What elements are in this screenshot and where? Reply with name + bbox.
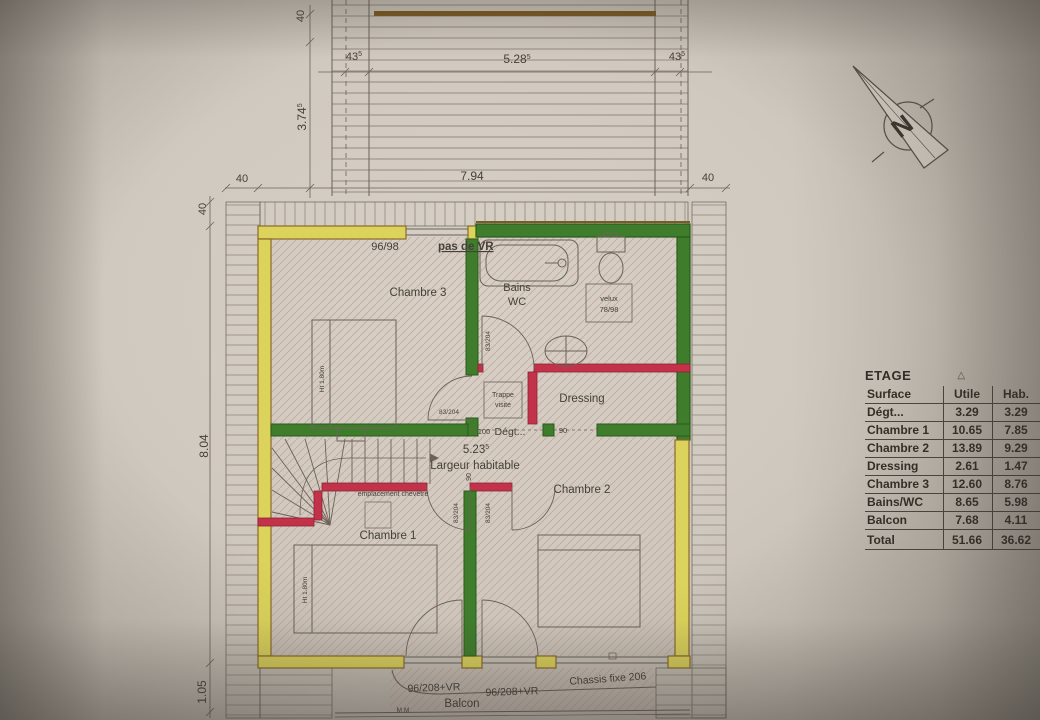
wall-corridor-green-right [597, 424, 690, 436]
dim-40-side: 40 [197, 203, 209, 215]
label-chambre2: Chambre 2 [554, 484, 611, 496]
table-row: Balcon7.684.11 [865, 512, 1040, 530]
dim-100: 100 [478, 427, 491, 436]
label-door-ch2: 83/204 [485, 503, 492, 523]
table-row: Bains/WC8.655.98 [865, 494, 1040, 512]
wall-corridor-green-left [271, 424, 468, 436]
label-velux-2: 78/98 [600, 305, 619, 314]
dim-528: 5.285 [503, 52, 530, 66]
north-compass: N [853, 66, 948, 168]
label-door-96-208-b: 96/208+VR [485, 685, 539, 699]
wall-degt-dressing-red [528, 372, 537, 424]
dim-105: 1.05 [195, 680, 209, 704]
compass-tick-sw [872, 152, 884, 162]
dim-40-right: 40 [702, 172, 714, 184]
dim-794: 7.94 [460, 169, 484, 183]
label-ht180-ch1: Ht 1.80m [302, 577, 309, 603]
wall-stair-red-side [314, 491, 322, 520]
label-dressing: Dressing [559, 393, 604, 405]
wall-bottom-pier-2 [536, 656, 556, 668]
wall-right-yellow [675, 440, 689, 656]
table-row: Chambre 110.657.85 [865, 422, 1040, 440]
label-trappe-1: Trappe [492, 392, 514, 399]
dim-804: 8.04 [197, 434, 211, 458]
wall-bottom-yellow-left [258, 656, 404, 668]
label-door-ch3: 83/204 [439, 409, 459, 416]
table-header-row: Surface Utile Hab. [865, 386, 1040, 404]
label-pas-de-vr: pas de VR [438, 241, 494, 253]
wall-ch3-bains-green [466, 239, 478, 375]
table-title: ETAGE [865, 368, 911, 383]
roof-hatch-block [332, 0, 688, 196]
wall-stair-red-bottom [258, 518, 314, 526]
table-row: Chambre 312.608.76 [865, 476, 1040, 494]
col-utile: Utile [944, 386, 993, 404]
dim-40-top: 40 [295, 10, 307, 22]
table-row: Chambre 213.899.29 [865, 440, 1040, 458]
table-row: Dégt...3.293.29 [865, 404, 1040, 422]
label-trappe-2: visite [495, 402, 511, 409]
wall-stair-red-top [322, 483, 427, 491]
dim-90-door: 90 [559, 426, 567, 435]
wall-bottom-corner [668, 656, 690, 668]
label-largeur-habitable: Largeur habitable [430, 460, 520, 472]
wall-top-green [476, 224, 690, 237]
label-degt: Dégt... [495, 426, 526, 438]
wall-top-yellow-left [258, 226, 406, 239]
label-balcon: Balcon [444, 698, 479, 710]
table-title-row: ETAGE △ [865, 368, 1040, 383]
label-window-96-98: 96/98 [371, 241, 399, 253]
wall-left-yellow [258, 239, 271, 656]
label-ht180-ch3: Ht 1.80m [319, 366, 326, 392]
table-row: Dressing2.611.47 [865, 458, 1040, 476]
label-velux-1: velux [600, 294, 618, 303]
label-mm-marks: M M [397, 707, 410, 714]
table-total-row: Total51.6636.62 [865, 530, 1040, 550]
col-surface: Surface [865, 386, 944, 404]
triangle-icon: △ [957, 370, 965, 381]
dim-374: 3.745 [295, 103, 309, 130]
roof-ridge-beam [374, 11, 656, 16]
label-door-96-208-a: 96/208+VR [407, 681, 461, 695]
wall-bottom-pier-1 [462, 656, 482, 668]
label-chevetre: emplacement chevêtre [358, 491, 429, 498]
label-door-ch1: 83/204 [453, 503, 460, 523]
label-door-bains: 83/204 [485, 331, 492, 351]
label-bains: Bains [503, 282, 531, 294]
floor-plan-drawing: 435 5.285 435 40 3.745 7.94 40 40 40 8.0… [0, 0, 1040, 720]
surface-table: ETAGE △ Surface Utile Hab. Dégt...3.293.… [865, 368, 1040, 550]
compass-tick-ne [920, 99, 934, 108]
label-chambre3: Chambre 3 [390, 287, 447, 299]
label-wc: WC [508, 296, 526, 308]
dim-90-corridor: 90 [466, 473, 473, 481]
label-chambre1: Chambre 1 [360, 530, 417, 542]
dim-40-left: 40 [236, 173, 248, 185]
floor-plan-photo: 435 5.285 435 40 3.745 7.94 40 40 40 8.0… [0, 0, 1040, 720]
wall-right-green [677, 237, 690, 440]
col-hab: Hab. [993, 386, 1040, 404]
